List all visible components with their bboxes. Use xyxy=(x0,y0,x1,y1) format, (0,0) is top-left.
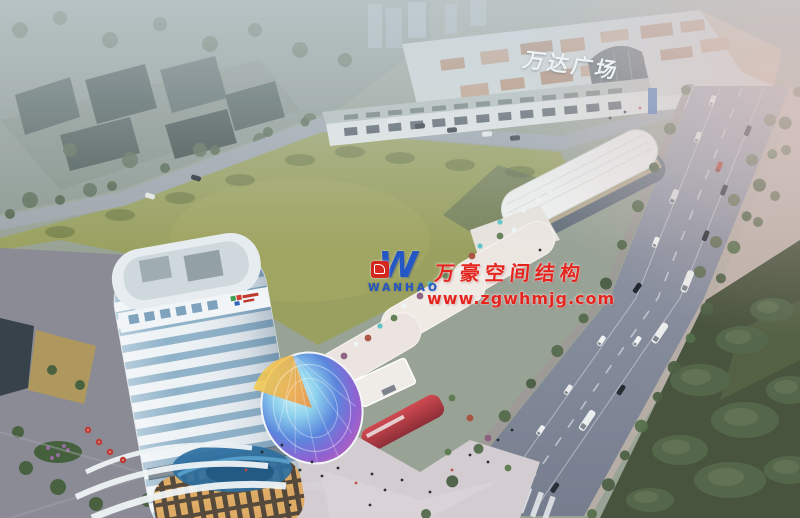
person xyxy=(337,467,340,470)
terrace-tree xyxy=(485,435,492,442)
person xyxy=(369,504,372,507)
watermark-company-name: 万豪空间结构 xyxy=(433,257,616,286)
tree-cluster xyxy=(634,491,658,503)
person xyxy=(245,469,248,472)
watermark: W WANHAO 万豪空间结构 www.zgwhmjg.com xyxy=(368,250,615,308)
tree-cluster xyxy=(708,468,744,486)
umbrella-red xyxy=(122,459,124,461)
terrace-tree xyxy=(365,335,372,342)
flower xyxy=(62,444,66,448)
tree xyxy=(551,345,563,357)
umbrella-red xyxy=(109,451,111,453)
tree xyxy=(446,475,458,487)
person xyxy=(261,451,264,454)
terrace-tree xyxy=(341,353,348,360)
tree xyxy=(686,333,696,343)
umbrella-red xyxy=(98,441,100,443)
tree xyxy=(620,450,630,460)
person xyxy=(281,444,284,447)
tree xyxy=(50,479,66,495)
tree xyxy=(47,365,57,375)
watermark-brand-latin: WANHAO xyxy=(368,282,426,294)
watermark-url: www.zgwhmjg.com xyxy=(427,289,615,308)
umbrella-teal xyxy=(377,323,382,328)
terrace-tree xyxy=(505,465,512,472)
tree xyxy=(526,379,536,389)
tree-cluster xyxy=(681,369,711,385)
person xyxy=(371,473,374,476)
person xyxy=(299,469,302,472)
terrace-tree xyxy=(445,449,452,456)
tree xyxy=(653,392,663,402)
tree xyxy=(499,410,511,422)
person xyxy=(401,479,404,482)
tree xyxy=(602,478,615,491)
tree xyxy=(474,444,484,454)
person xyxy=(497,439,500,442)
person xyxy=(451,469,454,472)
tree-cluster xyxy=(724,408,758,426)
tree xyxy=(75,380,85,390)
umbrella-teal xyxy=(353,341,358,346)
tree-cluster xyxy=(774,380,798,394)
wanhao-badge-icon xyxy=(371,261,389,278)
person xyxy=(487,461,490,464)
terrace-tree xyxy=(391,315,398,322)
person xyxy=(384,489,387,492)
tree-cluster xyxy=(773,460,799,474)
person xyxy=(289,504,292,507)
flower xyxy=(56,453,60,457)
watermark-logo: W WANHAO xyxy=(368,250,426,308)
flower xyxy=(50,456,54,460)
terrace-tree xyxy=(467,415,474,422)
tree xyxy=(579,313,589,323)
person xyxy=(469,454,472,457)
tree xyxy=(635,420,648,433)
person xyxy=(311,461,314,464)
tree-cluster xyxy=(662,440,690,455)
person xyxy=(321,475,324,478)
tree xyxy=(89,497,103,511)
terrace-tree xyxy=(449,395,456,402)
person xyxy=(511,429,514,432)
person xyxy=(355,482,358,485)
aerial-rendering-scene: 万达广场 W WANHAO 万豪空间结构 www.zgwhmjg.com xyxy=(0,0,800,518)
tree xyxy=(668,361,681,374)
person xyxy=(429,491,432,494)
umbrella-red xyxy=(87,429,89,431)
tree xyxy=(19,461,33,475)
